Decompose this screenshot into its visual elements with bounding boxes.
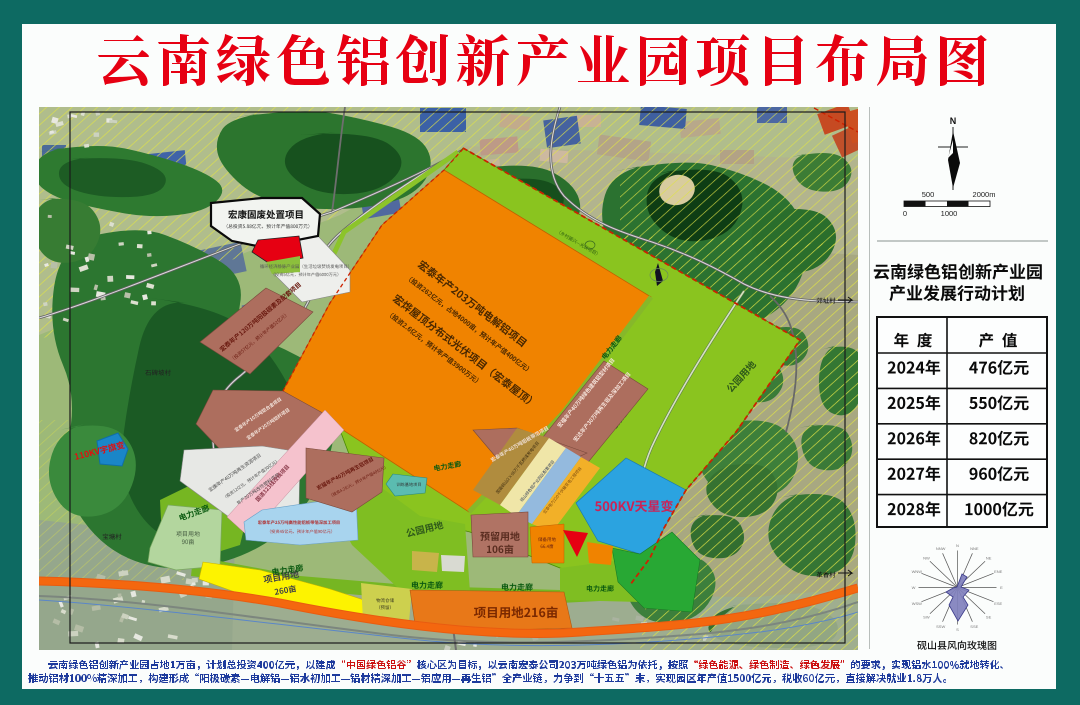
svg-text:WSW: WSW (912, 601, 922, 606)
svg-text:ESE: ESE (994, 601, 1002, 606)
svg-text:500: 500 (922, 190, 935, 199)
svg-text:N: N (950, 116, 957, 126)
svg-text:S: S (956, 627, 959, 632)
svg-text:W: W (912, 585, 916, 590)
svg-text:NW: NW (923, 555, 930, 560)
svg-text:ENE: ENE (994, 569, 1003, 574)
svg-text:0: 0 (903, 209, 907, 218)
svg-text:SE: SE (986, 615, 992, 620)
svg-text:SSE: SSE (970, 624, 978, 629)
svg-text:1000: 1000 (941, 209, 958, 218)
svg-text:2000m: 2000m (973, 190, 996, 199)
svg-text:SSW: SSW (936, 624, 945, 629)
svg-text:NNW: NNW (936, 546, 946, 551)
svg-text:SW: SW (923, 615, 930, 620)
svg-text:NNE: NNE (970, 546, 979, 551)
svg-text:WNW: WNW (912, 569, 923, 574)
svg-text:N: N (956, 543, 959, 548)
svg-text:NE: NE (986, 555, 992, 560)
svg-text:E: E (1000, 585, 1003, 590)
